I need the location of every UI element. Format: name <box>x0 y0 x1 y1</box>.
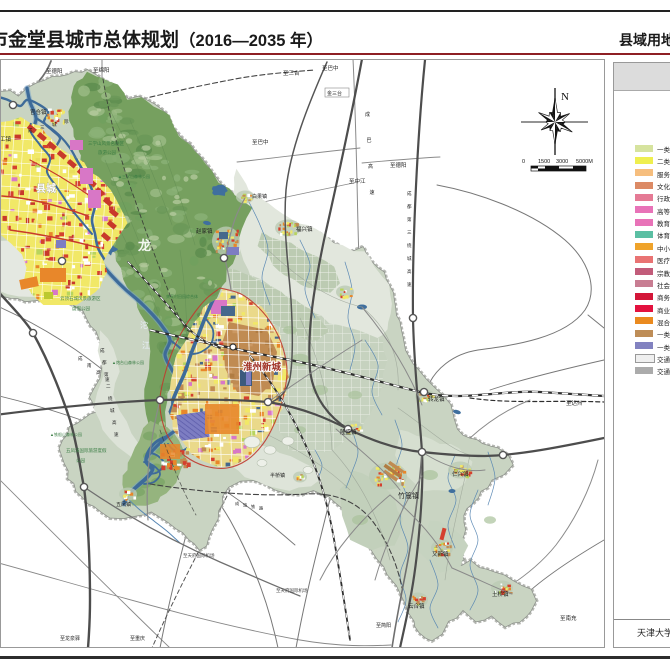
svg-text:至德阳: 至德阳 <box>390 161 407 169</box>
svg-text:度假公园: 度假公园 <box>72 305 90 312</box>
svg-text:高: 高 <box>112 419 117 426</box>
svg-text:白果镇: 白果镇 <box>252 193 267 200</box>
svg-text:城: 城 <box>110 407 115 414</box>
svg-text:三: 三 <box>40 125 45 130</box>
svg-text:云合镇: 云合镇 <box>408 602 425 610</box>
svg-text:高: 高 <box>96 369 101 376</box>
svg-text:N: N <box>561 91 569 103</box>
svg-text:官仓镇: 官仓镇 <box>30 108 47 116</box>
svg-text:仁兴镇: 仁兴镇 <box>452 470 469 478</box>
svg-text:1500: 1500 <box>538 159 550 165</box>
svg-text:城: 城 <box>52 121 57 128</box>
svg-text:半桥镇: 半桥镇 <box>270 472 285 479</box>
svg-text:竹篙镇: 竹篙镇 <box>398 491 419 500</box>
svg-text:转龙镇: 转龙镇 <box>428 395 445 403</box>
svg-text:至三台: 至三台 <box>283 69 300 77</box>
svg-text:至天府国际机场: 至天府国际机场 <box>276 587 308 594</box>
svg-text:至天府国际机场: 至天府国际机场 <box>183 552 215 559</box>
svg-text:0: 0 <box>522 159 525 165</box>
svg-text:五凤溪国际旅游度假: 五凤溪国际旅游度假 <box>66 447 107 454</box>
svg-text:高: 高 <box>407 268 412 275</box>
svg-text:3000: 3000 <box>556 159 568 165</box>
svg-text:至简阳: 至简阳 <box>376 622 391 629</box>
svg-text:至巴中: 至巴中 <box>252 138 269 146</box>
svg-text:江: 江 <box>142 341 150 350</box>
svg-text:隆盛镇: 隆盛镇 <box>340 428 357 436</box>
svg-text:至中江: 至中江 <box>349 177 366 185</box>
svg-text:龙: 龙 <box>138 238 151 253</box>
svg-text:至南充: 至南充 <box>560 614 577 622</box>
svg-text:旅游公园: 旅游公园 <box>98 149 116 156</box>
svg-text:第: 第 <box>407 216 412 223</box>
svg-text:至重庆: 至重庆 <box>130 635 145 642</box>
svg-text:沱: 沱 <box>140 320 148 330</box>
svg-text:至巴中: 至巴中 <box>322 64 339 72</box>
svg-text:南: 南 <box>87 362 92 368</box>
svg-text:成: 成 <box>28 127 33 134</box>
svg-text:至达州: 至达州 <box>566 399 583 407</box>
svg-text:际: 际 <box>64 118 69 125</box>
svg-text:三: 三 <box>407 230 412 235</box>
svg-text:城: 城 <box>407 255 412 262</box>
svg-text:▲三学山森林公园: ▲三学山森林公园 <box>118 173 150 179</box>
svg-text:巴: 巴 <box>367 138 372 144</box>
svg-text:县城: 县城 <box>36 182 56 195</box>
svg-text:速: 速 <box>370 190 375 196</box>
svg-text:绕: 绕 <box>407 242 412 249</box>
svg-text:成: 成 <box>365 111 370 118</box>
svg-text:土桥镇: 土桥镇 <box>492 590 509 598</box>
svg-text:▲铁船山森林公园: ▲铁船山森林公园 <box>50 431 82 437</box>
svg-text:成: 成 <box>100 347 105 354</box>
svg-text:淮州新城: 淮州新城 <box>243 361 282 373</box>
svg-text:至龙泉驿: 至龙泉驿 <box>60 635 80 642</box>
svg-text:高: 高 <box>368 163 373 170</box>
svg-text:福兴镇: 福兴镇 <box>296 225 313 233</box>
svg-text:龚家村田园综合体: 龚家村田园综合体 <box>166 293 198 299</box>
svg-text:至德阳: 至德阳 <box>46 67 63 75</box>
svg-text:成: 成 <box>78 355 83 362</box>
svg-text:金三台: 金三台 <box>327 90 342 97</box>
svg-text:赵家镇: 赵家镇 <box>196 227 213 235</box>
svg-text:至绵阳: 至绵阳 <box>93 66 110 74</box>
svg-text:五凤镇: 五凤镇 <box>116 501 131 508</box>
svg-text:成: 成 <box>407 190 412 197</box>
svg-text:5000M: 5000M <box>576 159 593 165</box>
svg-text:绕: 绕 <box>108 395 113 402</box>
svg-text:三学山风景名胜区: 三学山风景名胜区 <box>88 140 124 147</box>
svg-text:▲炮台山森林公园: ▲炮台山森林公园 <box>112 359 144 365</box>
svg-text:又新镇: 又新镇 <box>432 550 449 558</box>
svg-text:工镇: 工镇 <box>0 135 12 143</box>
svg-text:成: 成 <box>235 500 239 507</box>
svg-text:云顶石城风景旅游区: 云顶石城风景旅游区 <box>60 295 101 302</box>
svg-text:二: 二 <box>106 384 111 389</box>
